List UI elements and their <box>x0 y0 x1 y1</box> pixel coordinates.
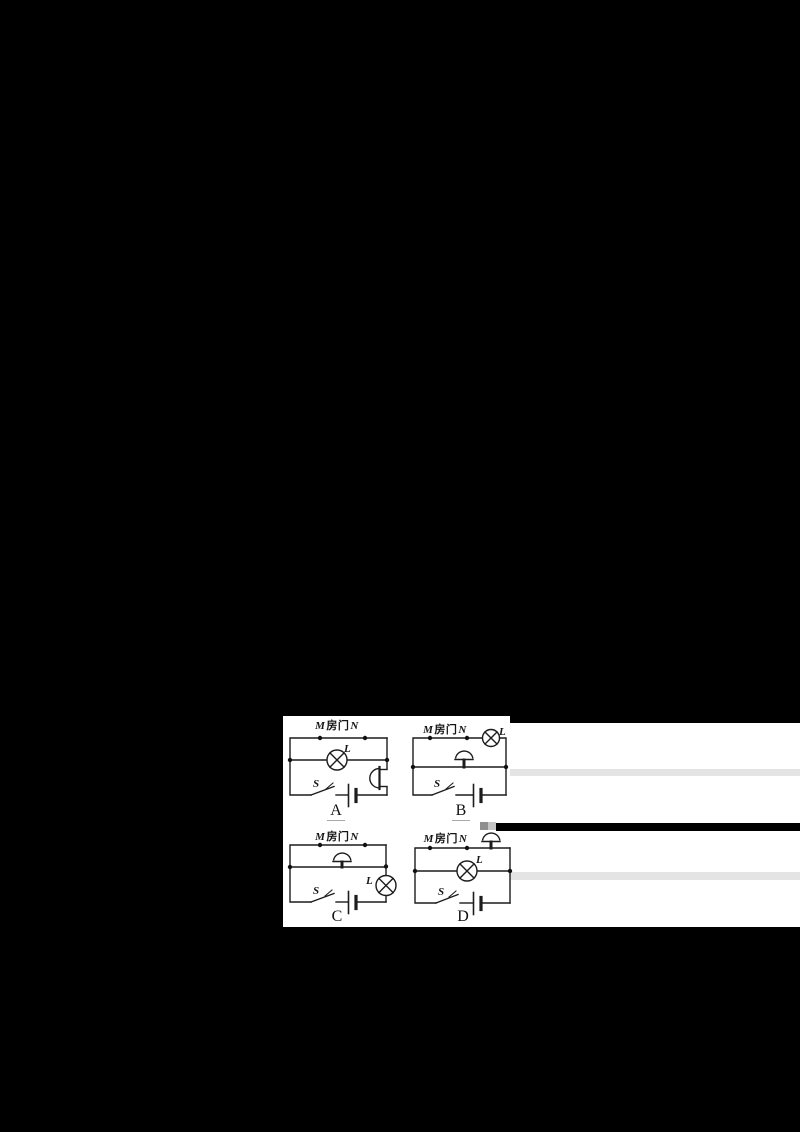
scan-stripe-artifact <box>510 769 800 776</box>
bell-icon <box>333 853 351 867</box>
switch-label-b: S <box>434 778 440 790</box>
battery-icon <box>349 892 357 914</box>
door-label-c: M房门N <box>303 831 371 843</box>
door-label-n: N <box>458 833 468 845</box>
scanned-page: M房门N M房门N M房门N M房门N L L L L S S S S A B … <box>0 0 800 1132</box>
door-label-door: 房门 <box>434 724 457 736</box>
door-label-d: M房门N <box>412 833 479 845</box>
option-letter-c: C <box>328 909 346 925</box>
door-label-n: N <box>349 831 359 843</box>
battery-icon <box>349 785 357 807</box>
switch-label-d: S <box>438 886 444 898</box>
door-label-door: 房门 <box>326 831 349 843</box>
lamp-icon <box>457 861 477 881</box>
lamp-icon <box>483 730 500 747</box>
battery-icon <box>474 785 482 807</box>
door-label-m: M <box>422 724 434 736</box>
door-label-a: M房门N <box>303 720 371 732</box>
scan-stripe-artifact <box>510 872 800 880</box>
door-label-b: M房门N <box>411 724 479 736</box>
lamp-label-a: L <box>344 743 351 755</box>
switch-label-a: S <box>313 778 319 790</box>
door-label-n: N <box>349 720 359 732</box>
bell-icon <box>455 751 473 767</box>
lamp-label-b: L <box>499 726 506 738</box>
lamp-label-d: L <box>476 854 483 866</box>
door-label-n: N <box>457 724 467 736</box>
option-letter-d: D <box>454 909 472 925</box>
door-label-door: 房门 <box>326 720 349 732</box>
door-label-m: M <box>314 720 326 732</box>
bell-icon <box>482 833 500 848</box>
switch-label-c: S <box>313 885 319 897</box>
scan-black-bar-artifact <box>496 823 800 831</box>
option-letter-b: B <box>452 803 470 821</box>
option-letter-a: A <box>327 803 345 821</box>
battery-icon <box>474 893 482 915</box>
lamp-label-c: L <box>366 875 373 887</box>
bell-icon <box>370 767 387 789</box>
door-label-door: 房门 <box>435 833 458 845</box>
door-label-m: M <box>423 833 435 845</box>
lamp-icon <box>376 876 396 896</box>
door-label-m: M <box>314 831 326 843</box>
